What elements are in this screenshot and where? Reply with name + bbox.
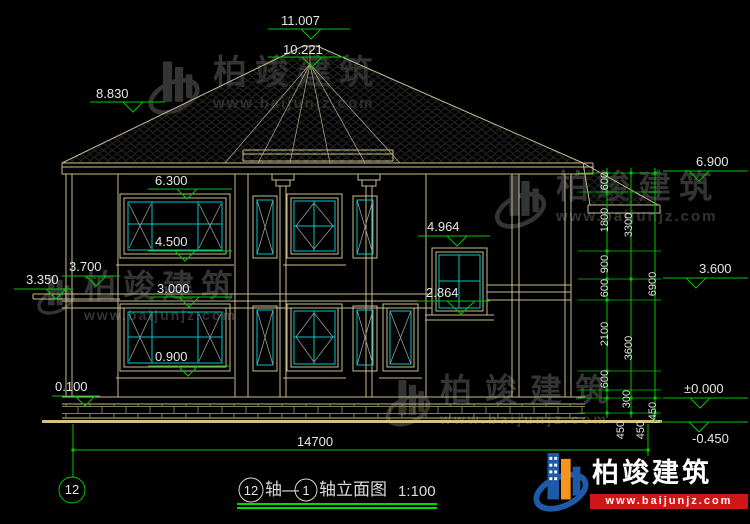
elevation-label-left-canopy-bottom: 3.350	[26, 273, 59, 287]
window-1f-bay-narrow-left	[253, 306, 277, 371]
dim-label-inner-600b: 600	[599, 266, 611, 310]
dim-label-inner-2100: 2100	[599, 312, 611, 356]
elevation-label-stair-window-sill: 2.864	[426, 286, 459, 300]
window-1f-bay-narrow-right	[353, 306, 377, 371]
dim-label-inner-600c: 600	[599, 357, 611, 401]
elevation-label-right-eave: 6.900	[696, 155, 729, 169]
dim-label-outer-6900: 6900	[647, 262, 659, 306]
dim-label-inner-1800: 1800	[599, 198, 611, 242]
ground-line	[42, 420, 662, 423]
window-1f-mid	[383, 304, 418, 371]
window-1f-bay-main	[287, 304, 342, 371]
elevation-label-ridge: 11.007	[281, 14, 320, 28]
elevation-label-window-head-2f: 6.300	[155, 174, 188, 188]
title-start-axis: 12	[238, 484, 264, 498]
elevation-label-left-canopy-top: 3.700	[69, 260, 102, 274]
footer-brand: 柏竣建筑	[592, 458, 712, 488]
elevation-label-turret-top: 10.221	[283, 43, 323, 57]
dim-label-outer-450: 450	[647, 389, 659, 433]
left-canopy-band	[33, 294, 120, 299]
window-2f-bay-main	[287, 194, 342, 258]
elevation-label-floor-2f: 3.000	[157, 282, 190, 296]
cad-elevation-canvas: 柏竣建筑 www.baijunjz.com 柏竣建筑 www.baijunjz.…	[0, 0, 750, 524]
dim-label-middle-3300: 3300	[623, 203, 635, 247]
roof	[62, 46, 660, 213]
title-end-axis: 1	[295, 484, 317, 498]
dim-label-middle-3600: 3600	[623, 326, 635, 370]
title-name: 轴立面图	[319, 480, 387, 500]
window-2f-bay-narrow-right	[353, 196, 377, 258]
elevation-label-plinth-top-left: 0.100	[55, 380, 88, 394]
elevation-label-window-sill-2f: 4.500	[155, 235, 188, 249]
grid-bubble-label: 12	[59, 483, 85, 497]
title-scale: 1:100	[398, 482, 436, 502]
elevation-label-window-sill-1f: 0.900	[155, 350, 188, 364]
company-logo-icon	[532, 448, 590, 520]
dim-label-inner-600a: 600	[599, 159, 611, 203]
dim-label-total-width: 14700	[275, 435, 355, 449]
elevation-label-left-roof: 8.830	[96, 87, 129, 101]
elevation-label-below-grade: -0.450	[692, 432, 729, 446]
title-dash: 轴—	[265, 480, 299, 500]
footer-logo: 柏竣建筑 www.baijunjz.com	[530, 446, 750, 522]
floor-band-right	[487, 285, 571, 300]
walls	[33, 174, 662, 423]
main-eave-band	[62, 163, 593, 174]
elevation-label-ground-zero: ±0.000	[684, 382, 724, 396]
window-stair	[425, 248, 494, 320]
elevation-label-right-band-top: 3.600	[699, 262, 732, 276]
footer-url: www.baijunjz.com	[590, 494, 748, 509]
window-2f-bay-narrow-left	[253, 196, 277, 258]
elevation-label-stair-window-head: 4.964	[427, 220, 460, 234]
